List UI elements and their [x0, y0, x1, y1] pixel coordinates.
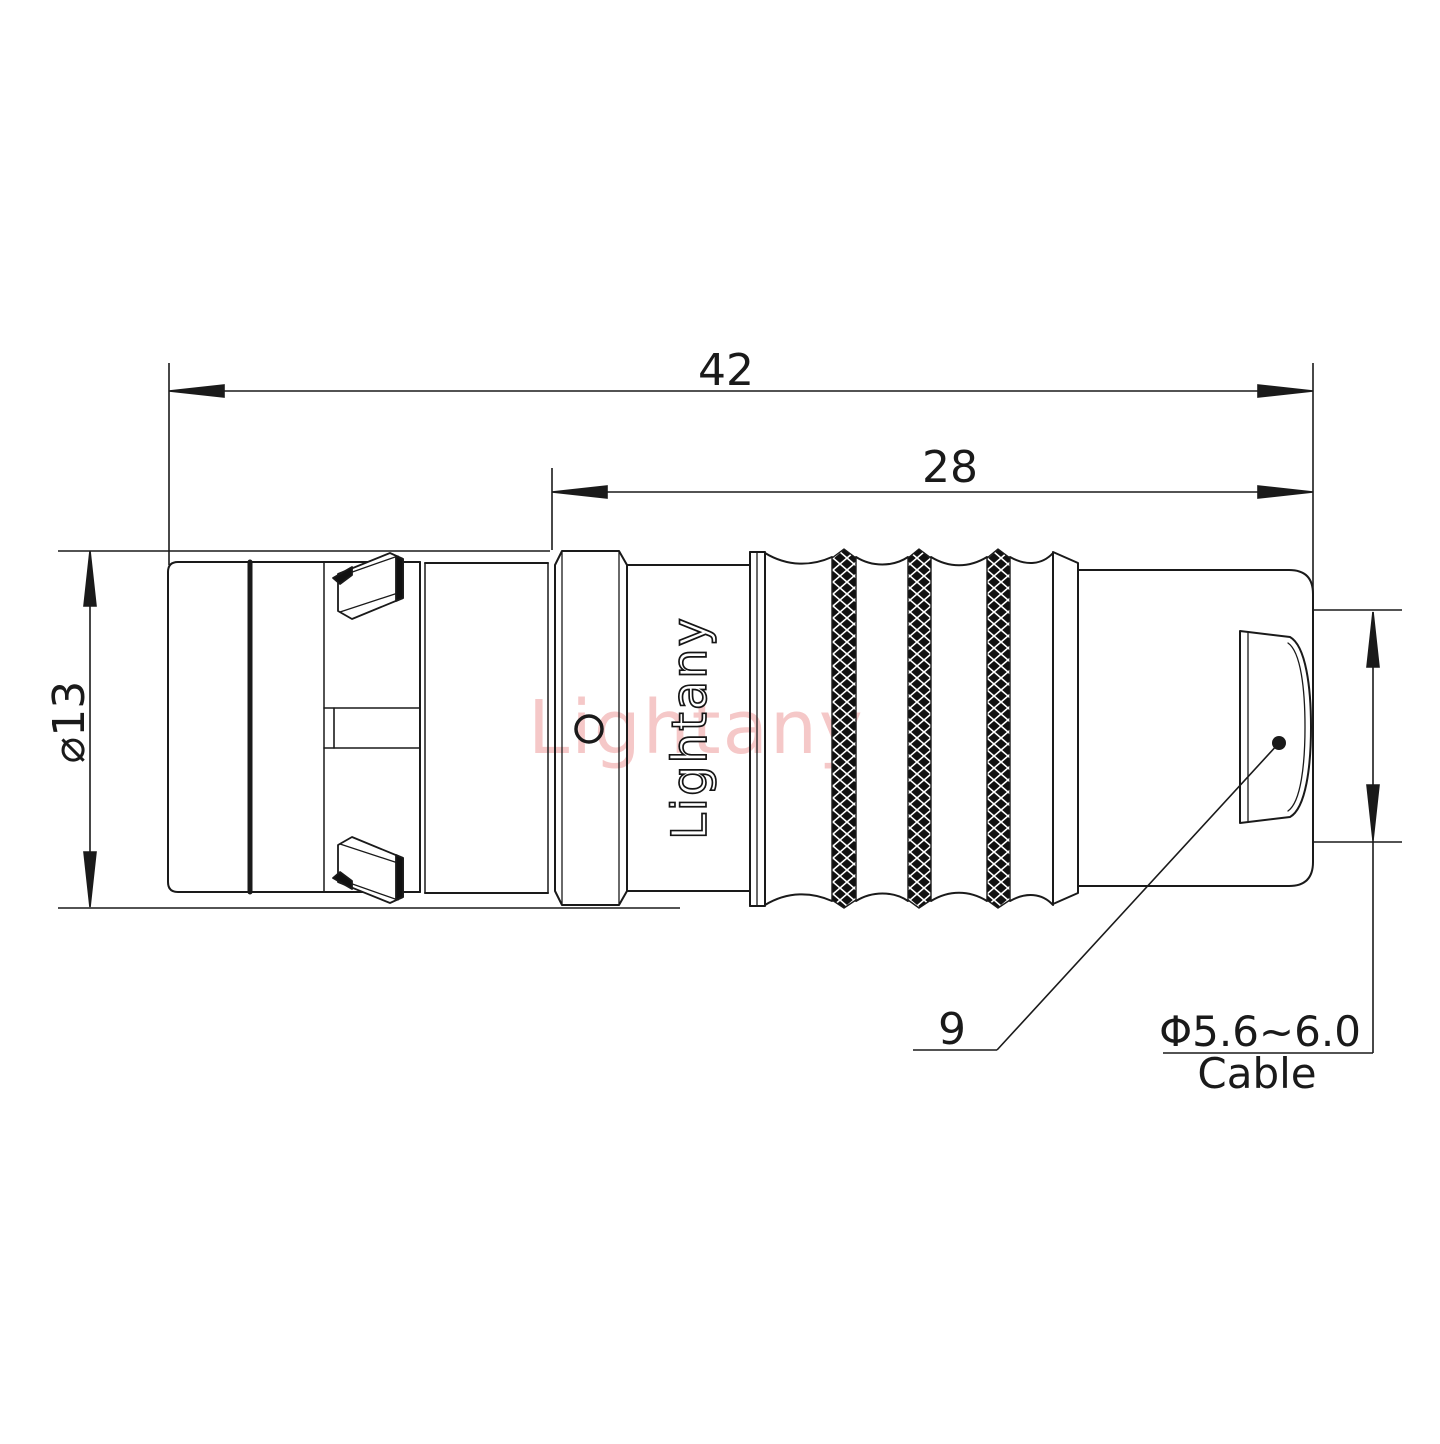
leader-dot — [1272, 736, 1286, 750]
latch-bottom — [333, 837, 403, 903]
cable-caption-label: Cable — [1197, 1049, 1316, 1098]
arrow-left-icon — [169, 385, 224, 397]
arrow-up-icon — [1367, 612, 1379, 667]
dim-28-label: 28 — [922, 442, 978, 493]
dim-42-label: 42 — [698, 345, 754, 396]
boot-rear-flange — [1053, 552, 1078, 904]
connector-drawing-svg: Lightany — [0, 0, 1440, 1440]
knurl-band-3 — [987, 549, 1010, 908]
arrow-right-icon — [1258, 385, 1313, 397]
knurl-band-1 — [832, 549, 856, 908]
arrow-down-icon — [1367, 785, 1379, 840]
dim-9-label: 9 — [938, 1004, 966, 1055]
knurl-band-2 — [908, 549, 931, 908]
dim-cable-diameter — [1163, 610, 1402, 1053]
arrow-right-icon — [1258, 486, 1313, 498]
dim-diameter-label: ⌀13 — [44, 681, 95, 763]
sleeve-notch — [324, 708, 420, 748]
arrow-left-icon — [552, 486, 607, 498]
cable-bore — [1240, 631, 1311, 823]
technical-drawing-canvas: Lightany — [0, 0, 1440, 1440]
arrow-up-icon — [84, 551, 96, 606]
release-sleeve — [168, 562, 425, 893]
cable-nut — [1078, 570, 1313, 886]
arrow-down-icon — [84, 852, 96, 907]
body-marking-text: Lightany — [662, 616, 718, 840]
